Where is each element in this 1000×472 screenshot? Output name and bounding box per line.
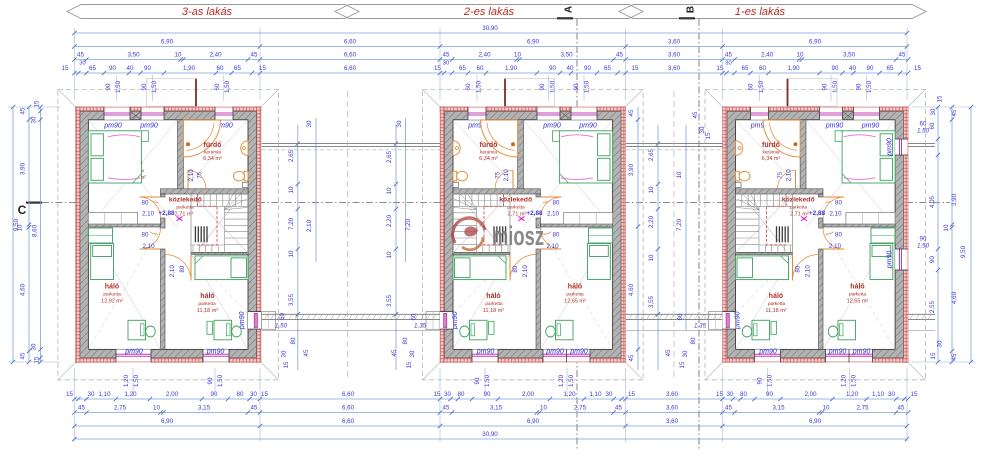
svg-text:30: 30 [444,391,451,398]
svg-text:45: 45 [725,405,732,412]
svg-text:2,65: 2,65 [288,149,295,162]
svg-text:65: 65 [604,65,611,72]
svg-text:1,50: 1,50 [917,242,930,249]
svg-text:30: 30 [443,61,449,67]
svg-text:30: 30 [606,391,613,398]
svg-text:45: 45 [725,52,732,59]
svg-text:80: 80 [835,200,842,207]
svg-text:6,60: 6,60 [342,391,355,398]
svg-text:háló: háló [200,293,214,300]
svg-text:15: 15 [937,95,944,102]
svg-text:3,60: 3,60 [668,52,681,59]
svg-text:15: 15 [911,391,918,398]
svg-text:45: 45 [251,52,258,59]
svg-text:45: 45 [616,52,623,59]
svg-text:fürdő: fürdő [480,142,498,149]
svg-text:pm90: pm90 [852,348,871,355]
svg-text:15: 15 [930,352,937,359]
svg-text:pm90: pm90 [239,311,246,330]
svg-text:4,05: 4,05 [929,195,936,208]
svg-text:1,20: 1,20 [841,374,848,387]
svg-text:pm90: pm90 [861,122,880,129]
svg-text:1,50: 1,50 [851,374,858,387]
svg-text:30: 30 [250,391,257,398]
svg-text:40: 40 [127,65,134,72]
svg-text:80: 80 [795,265,802,272]
svg-text:45: 45 [78,405,85,412]
svg-text:10: 10 [823,405,830,412]
svg-text:80: 80 [835,231,842,238]
svg-text:80: 80 [553,231,560,238]
svg-text:80: 80 [142,200,149,207]
svg-text:80: 80 [458,391,465,398]
svg-text:+2,88: +2,88 [526,210,543,217]
svg-text:pm90: pm90 [569,348,588,355]
svg-text:45: 45 [665,349,672,356]
svg-text:1,10: 1,10 [872,391,885,398]
svg-text:3,50: 3,50 [127,52,140,59]
svg-text:6,34 m²: 6,34 m² [762,156,781,162]
svg-text:pm90: pm90 [828,348,847,355]
svg-text:1,90: 1,90 [505,65,518,72]
svg-text:1,20: 1,20 [123,374,130,387]
svg-text:2,10: 2,10 [306,219,313,232]
svg-text:90: 90 [867,65,874,72]
svg-text:30: 30 [682,350,689,357]
svg-text:1-es lakás: 1-es lakás [735,6,786,18]
svg-text:pm90: pm90 [758,348,777,355]
svg-text:kerámia: kerámia [204,150,221,156]
svg-text:15: 15 [914,65,921,72]
svg-text:6,90: 6,90 [527,418,540,425]
svg-text:6,90: 6,90 [809,39,822,46]
svg-text:2,40: 2,40 [761,52,774,59]
svg-text:45: 45 [615,405,622,412]
svg-text:3,60: 3,60 [666,391,679,398]
svg-text:10: 10 [153,405,160,412]
svg-text:15: 15 [283,361,290,368]
svg-text:1,50: 1,50 [917,128,930,135]
svg-text:háló: háló [769,293,783,300]
svg-text:B: B [686,6,697,13]
svg-text:6,60: 6,60 [344,65,357,72]
svg-text:90: 90 [549,65,556,72]
svg-text:1,35: 1,35 [414,323,427,330]
svg-text:90: 90 [757,377,764,384]
svg-text:15: 15 [632,65,639,72]
svg-text:30: 30 [79,61,85,67]
svg-text:4,60: 4,60 [628,283,635,296]
svg-text:15: 15 [261,391,268,398]
svg-text:2,10: 2,10 [522,265,529,278]
svg-text:6,60: 6,60 [342,405,355,412]
svg-text:1,90: 1,90 [183,65,196,72]
svg-text:2,10: 2,10 [188,169,195,182]
svg-text:10: 10 [386,187,393,194]
svg-text:15: 15 [628,391,635,398]
svg-text:30: 30 [888,391,895,398]
svg-text:75: 75 [777,171,784,178]
svg-text:10: 10 [943,224,950,231]
svg-text:1,50: 1,50 [866,80,873,93]
svg-text:1,50: 1,50 [224,80,231,93]
svg-text:10: 10 [514,52,521,59]
svg-text:2,00: 2,00 [804,391,817,398]
svg-text:12,65 m²: 12,65 m² [847,299,869,305]
svg-text:45: 45 [443,52,450,59]
svg-text:30: 30 [409,350,416,357]
svg-text:3,50: 3,50 [560,52,573,59]
svg-text:80: 80 [690,337,697,344]
svg-text:30: 30 [930,108,937,115]
svg-text:45: 45 [628,109,635,116]
svg-text:pm90: pm90 [452,311,459,330]
svg-text:3,60: 3,60 [666,418,679,425]
svg-text:2,10: 2,10 [805,265,812,278]
svg-text:parketta: parketta [768,301,786,307]
svg-text:fürdő: fürdő [762,142,780,149]
svg-text:10: 10 [648,186,655,193]
svg-text:2,20: 2,20 [386,214,393,227]
svg-text:80: 80 [142,231,149,238]
svg-text:40: 40 [849,65,856,72]
svg-text:6,90: 6,90 [527,39,540,46]
svg-text:2,75: 2,75 [574,405,587,412]
svg-text:miosz: miosz [492,221,544,251]
svg-text:45: 45 [898,405,905,412]
svg-text:1,50: 1,50 [217,374,224,387]
svg-text:3,55: 3,55 [648,295,655,308]
svg-text:10: 10 [648,254,655,261]
svg-text:45: 45 [20,107,27,114]
svg-text:7,20: 7,20 [288,217,295,230]
svg-text:7,20: 7,20 [676,218,683,231]
svg-text:2,55: 2,55 [929,300,936,313]
svg-text:háló: háló [850,284,864,291]
svg-text:pm90: pm90 [139,122,158,129]
svg-text:1,50: 1,50 [832,80,839,93]
svg-text:15: 15 [679,361,686,368]
svg-text:1,90: 1,90 [787,65,800,72]
svg-text:2,40: 2,40 [478,52,491,59]
svg-text:6,34 m²: 6,34 m² [203,156,222,162]
svg-text:45: 45 [951,109,958,116]
svg-text:parketta: parketta [566,292,584,298]
svg-text:6,34 m²: 6,34 m² [479,156,498,162]
svg-text:65: 65 [742,65,749,72]
svg-text:háló: háló [568,284,582,291]
svg-text:30: 30 [396,120,403,127]
svg-text:90: 90 [109,65,116,72]
svg-text:6,60: 6,60 [344,39,357,46]
svg-text:1,50: 1,50 [568,374,575,387]
svg-text:1,20: 1,20 [124,391,137,398]
svg-text:pm90: pm90 [206,348,225,355]
svg-text:45: 45 [20,352,27,359]
svg-text:2,10: 2,10 [829,243,842,250]
svg-text:6,60: 6,60 [342,418,355,425]
svg-text:30: 30 [31,116,38,123]
svg-text:pm90: pm90 [887,138,894,157]
svg-text:65: 65 [459,65,466,72]
svg-text:3,90: 3,90 [951,193,958,206]
svg-text:2,10: 2,10 [547,210,560,217]
svg-text:10: 10 [288,186,295,193]
svg-text:3-as lakás: 3-as lakás [182,6,233,18]
svg-text:30,90: 30,90 [482,25,498,32]
svg-text:1,50: 1,50 [584,80,591,93]
svg-text:90: 90 [832,65,839,72]
svg-text:pm90: pm90 [103,122,122,129]
svg-text:C: C [18,203,27,217]
svg-text:30: 30 [727,391,734,398]
svg-text:A: A [564,6,575,13]
svg-text:3,15: 3,15 [198,405,211,412]
svg-text:11,18 m²: 11,18 m² [197,308,218,314]
svg-text:10: 10 [797,52,804,59]
svg-text:60: 60 [920,121,927,128]
svg-text:pm90: pm90 [476,348,495,355]
svg-text:háló: háló [105,284,119,291]
svg-text:45: 45 [391,349,398,356]
svg-text:65: 65 [887,65,894,72]
svg-text:40: 40 [567,65,574,72]
svg-text:parketta: parketta [849,292,867,298]
svg-text:90: 90 [920,235,927,242]
svg-text:60: 60 [477,65,484,72]
svg-text:parketta: parketta [103,292,121,298]
svg-text:pm90: pm90 [578,122,597,129]
svg-text:3,60: 3,60 [668,65,681,72]
svg-text:2,20: 2,20 [648,215,655,228]
svg-text:1,10: 1,10 [589,391,602,398]
svg-text:12,65 m²: 12,65 m² [564,299,586,305]
svg-text:parketta: parketta [485,301,503,307]
svg-text:75: 75 [197,171,204,178]
svg-text:3,55: 3,55 [288,293,295,306]
svg-text:pm90: pm90 [542,122,561,129]
svg-text:fürdő: fürdő [204,142,222,149]
svg-text:2,10: 2,10 [169,265,176,278]
svg-text:90: 90 [474,377,481,384]
svg-text:15: 15 [406,361,413,368]
svg-text:1,10: 1,10 [98,391,111,398]
svg-text:15: 15 [705,132,712,139]
svg-text:2,10: 2,10 [829,210,842,217]
svg-text:parketta: parketta [198,301,216,307]
svg-text:10: 10 [175,52,182,59]
svg-text:80: 80 [402,337,409,344]
svg-text:30: 30 [88,391,95,398]
svg-text:1,50: 1,50 [275,323,288,330]
svg-text:90: 90 [484,391,491,398]
svg-text:1,20: 1,20 [563,391,576,398]
svg-text:2,75: 2,75 [114,405,127,412]
svg-text:45: 45 [951,353,958,360]
svg-text:3,90: 3,90 [628,163,635,176]
svg-text:1,50: 1,50 [758,80,765,93]
svg-text:60: 60 [759,65,766,72]
svg-text:2,10: 2,10 [142,210,155,217]
svg-text:11,18 m²: 11,18 m² [765,308,786,314]
svg-text:45: 45 [899,52,906,59]
svg-text:80: 80 [290,337,297,344]
svg-text:75: 75 [495,171,502,178]
svg-text:2,00: 2,00 [522,391,535,398]
svg-text:60: 60 [929,122,936,129]
svg-text:1,50: 1,50 [133,374,140,387]
svg-text:pm90: pm90 [825,122,844,129]
svg-text:80: 80 [237,391,244,398]
svg-text:60: 60 [279,312,286,319]
svg-text:4,60: 4,60 [951,291,958,304]
svg-text:60: 60 [217,65,224,72]
svg-text:15: 15 [34,356,41,363]
svg-text:10: 10 [540,405,547,412]
svg-text:pm90: pm90 [545,348,564,355]
svg-text:2,10: 2,10 [546,243,559,250]
svg-text:6,90: 6,90 [809,418,822,425]
svg-text:65: 65 [89,65,96,72]
svg-text:12,92 m²: 12,92 m² [101,299,123,305]
svg-text:90: 90 [144,65,151,72]
svg-text:8,60: 8,60 [32,224,39,237]
svg-text:9,50: 9,50 [960,245,967,258]
svg-text:1,20: 1,20 [558,374,565,387]
svg-text:90: 90 [211,391,218,398]
svg-text:kerámia: kerámia [480,150,497,156]
svg-text:3,50: 3,50 [843,52,856,59]
svg-text:80: 80 [512,265,519,272]
svg-text:80: 80 [179,265,186,272]
svg-text:90: 90 [929,256,936,263]
svg-text:4,60: 4,60 [20,283,27,296]
svg-text:15: 15 [66,391,73,398]
svg-text:1,50: 1,50 [115,80,122,93]
svg-text:6,90: 6,90 [161,39,174,46]
svg-text:pm90: pm90 [887,251,894,270]
svg-text:45: 45 [628,354,635,361]
svg-text:10: 10 [676,171,683,178]
svg-text:30: 30 [725,61,731,67]
svg-text:60: 60 [411,313,418,320]
svg-text:2,00: 2,00 [166,391,179,398]
svg-text:45: 45 [443,405,450,412]
svg-text:65: 65 [234,65,241,72]
svg-text:15: 15 [62,65,69,72]
svg-text:11,18 m²: 11,18 m² [483,308,504,314]
svg-text:80: 80 [740,391,747,398]
svg-text:30: 30 [306,120,313,127]
svg-text:45: 45 [251,405,258,412]
svg-text:45: 45 [77,52,84,59]
svg-text:90: 90 [207,377,214,384]
svg-text:10: 10 [386,251,393,258]
svg-text:80: 80 [553,200,560,207]
svg-text:1,20: 1,20 [846,391,859,398]
svg-text:pm90: pm90 [124,348,143,355]
svg-text:90: 90 [766,391,773,398]
svg-text:2,10: 2,10 [503,169,510,182]
svg-text:3,60: 3,60 [668,39,681,46]
svg-text:45: 45 [303,349,310,356]
svg-text:+2,88: +2,88 [158,210,175,217]
svg-text:2,10: 2,10 [142,243,155,250]
svg-text:pm90: pm90 [734,311,741,330]
svg-text:3,15: 3,15 [772,405,785,412]
svg-text:7,20: 7,20 [405,218,412,231]
svg-text:3,90: 3,90 [20,162,27,175]
svg-text:6,60: 6,60 [344,52,357,59]
svg-text:30: 30 [31,343,38,350]
svg-text:15: 15 [717,65,724,72]
svg-text:6,90: 6,90 [161,418,174,425]
svg-text:kerámia: kerámia [762,150,779,156]
svg-text:3,15: 3,15 [490,405,503,412]
svg-text:3,55: 3,55 [386,294,393,307]
svg-text:10: 10 [288,250,295,257]
svg-text:2,65: 2,65 [648,148,655,161]
svg-text:30: 30 [937,340,944,347]
svg-text:30: 30 [280,350,287,357]
svg-text:2,10: 2,10 [786,169,793,182]
svg-text:30,90: 30,90 [482,431,498,438]
svg-text:2,40: 2,40 [209,52,222,59]
svg-text:1,50: 1,50 [550,80,557,93]
svg-text:2,75: 2,75 [856,405,869,412]
svg-text:15: 15 [434,65,441,72]
svg-text:1,50: 1,50 [476,80,483,93]
svg-text:45: 45 [692,111,699,118]
svg-text:háló: háló [486,293,500,300]
svg-text:3,60: 3,60 [666,405,679,412]
svg-text:90: 90 [584,65,591,72]
svg-text:10: 10 [17,224,24,231]
svg-text:60: 60 [677,313,684,320]
svg-text:2-es lakás: 2-es lakás [463,6,515,18]
svg-text:+2,88: +2,88 [809,210,826,217]
svg-text:15: 15 [34,100,41,107]
svg-text:2,65: 2,65 [386,150,393,163]
